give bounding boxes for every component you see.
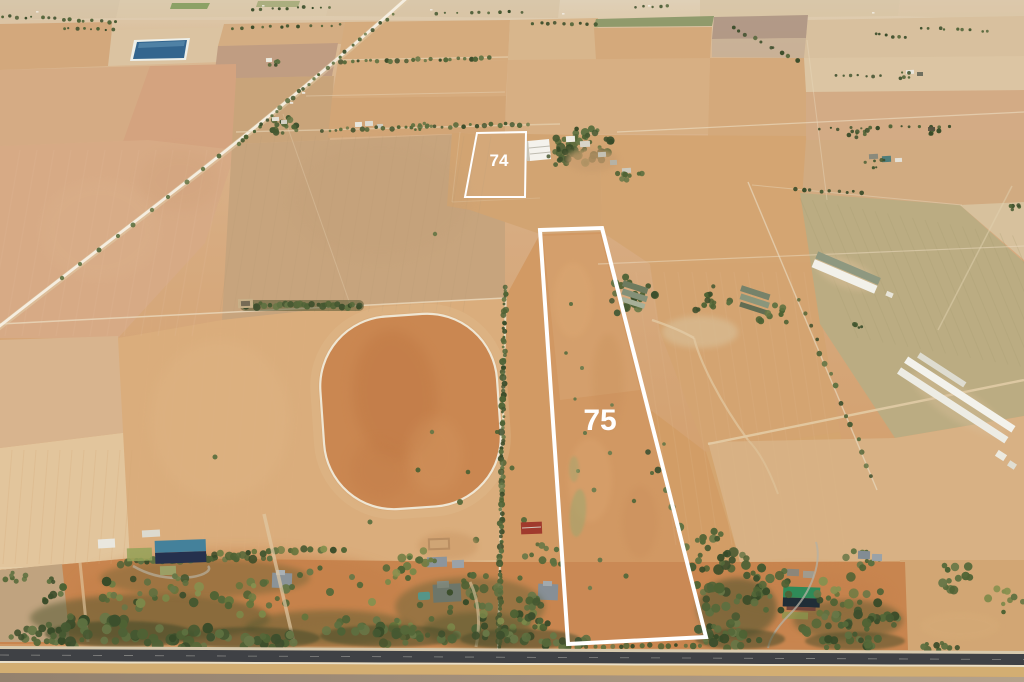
svg-text:75: 75 [583,404,616,437]
svg-text:74: 74 [490,151,509,170]
